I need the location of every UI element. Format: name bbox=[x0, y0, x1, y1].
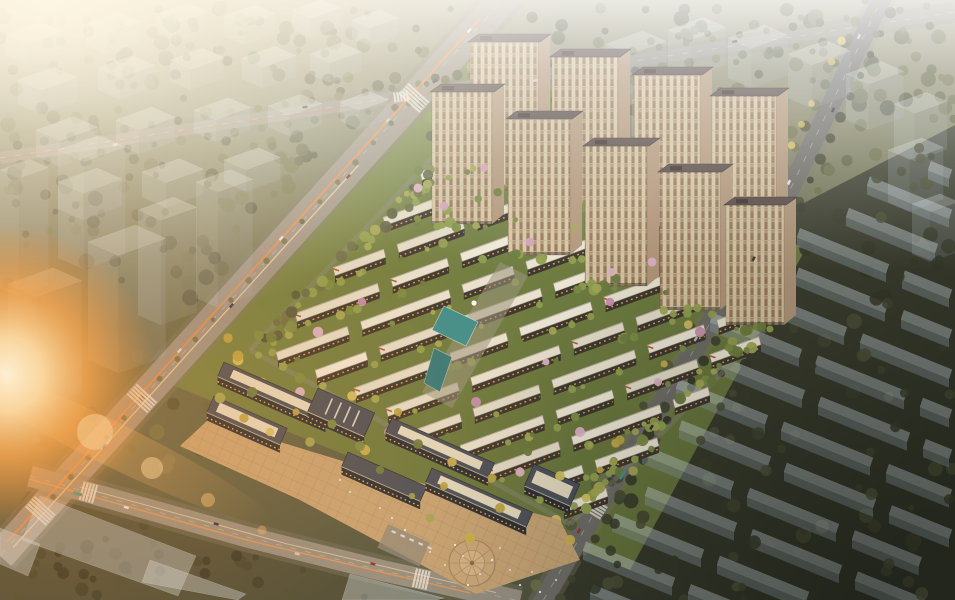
lens-flare-ring bbox=[258, 526, 267, 535]
lens-flare-ring bbox=[77, 414, 113, 450]
lens-flare-ring bbox=[201, 493, 215, 507]
lens-flare-ring bbox=[141, 457, 163, 479]
aerial-architectural-rendering bbox=[0, 0, 955, 600]
rendering-canvas bbox=[0, 0, 955, 600]
atmosphere-layer bbox=[0, 0, 955, 600]
warm-wash bbox=[0, 0, 955, 600]
